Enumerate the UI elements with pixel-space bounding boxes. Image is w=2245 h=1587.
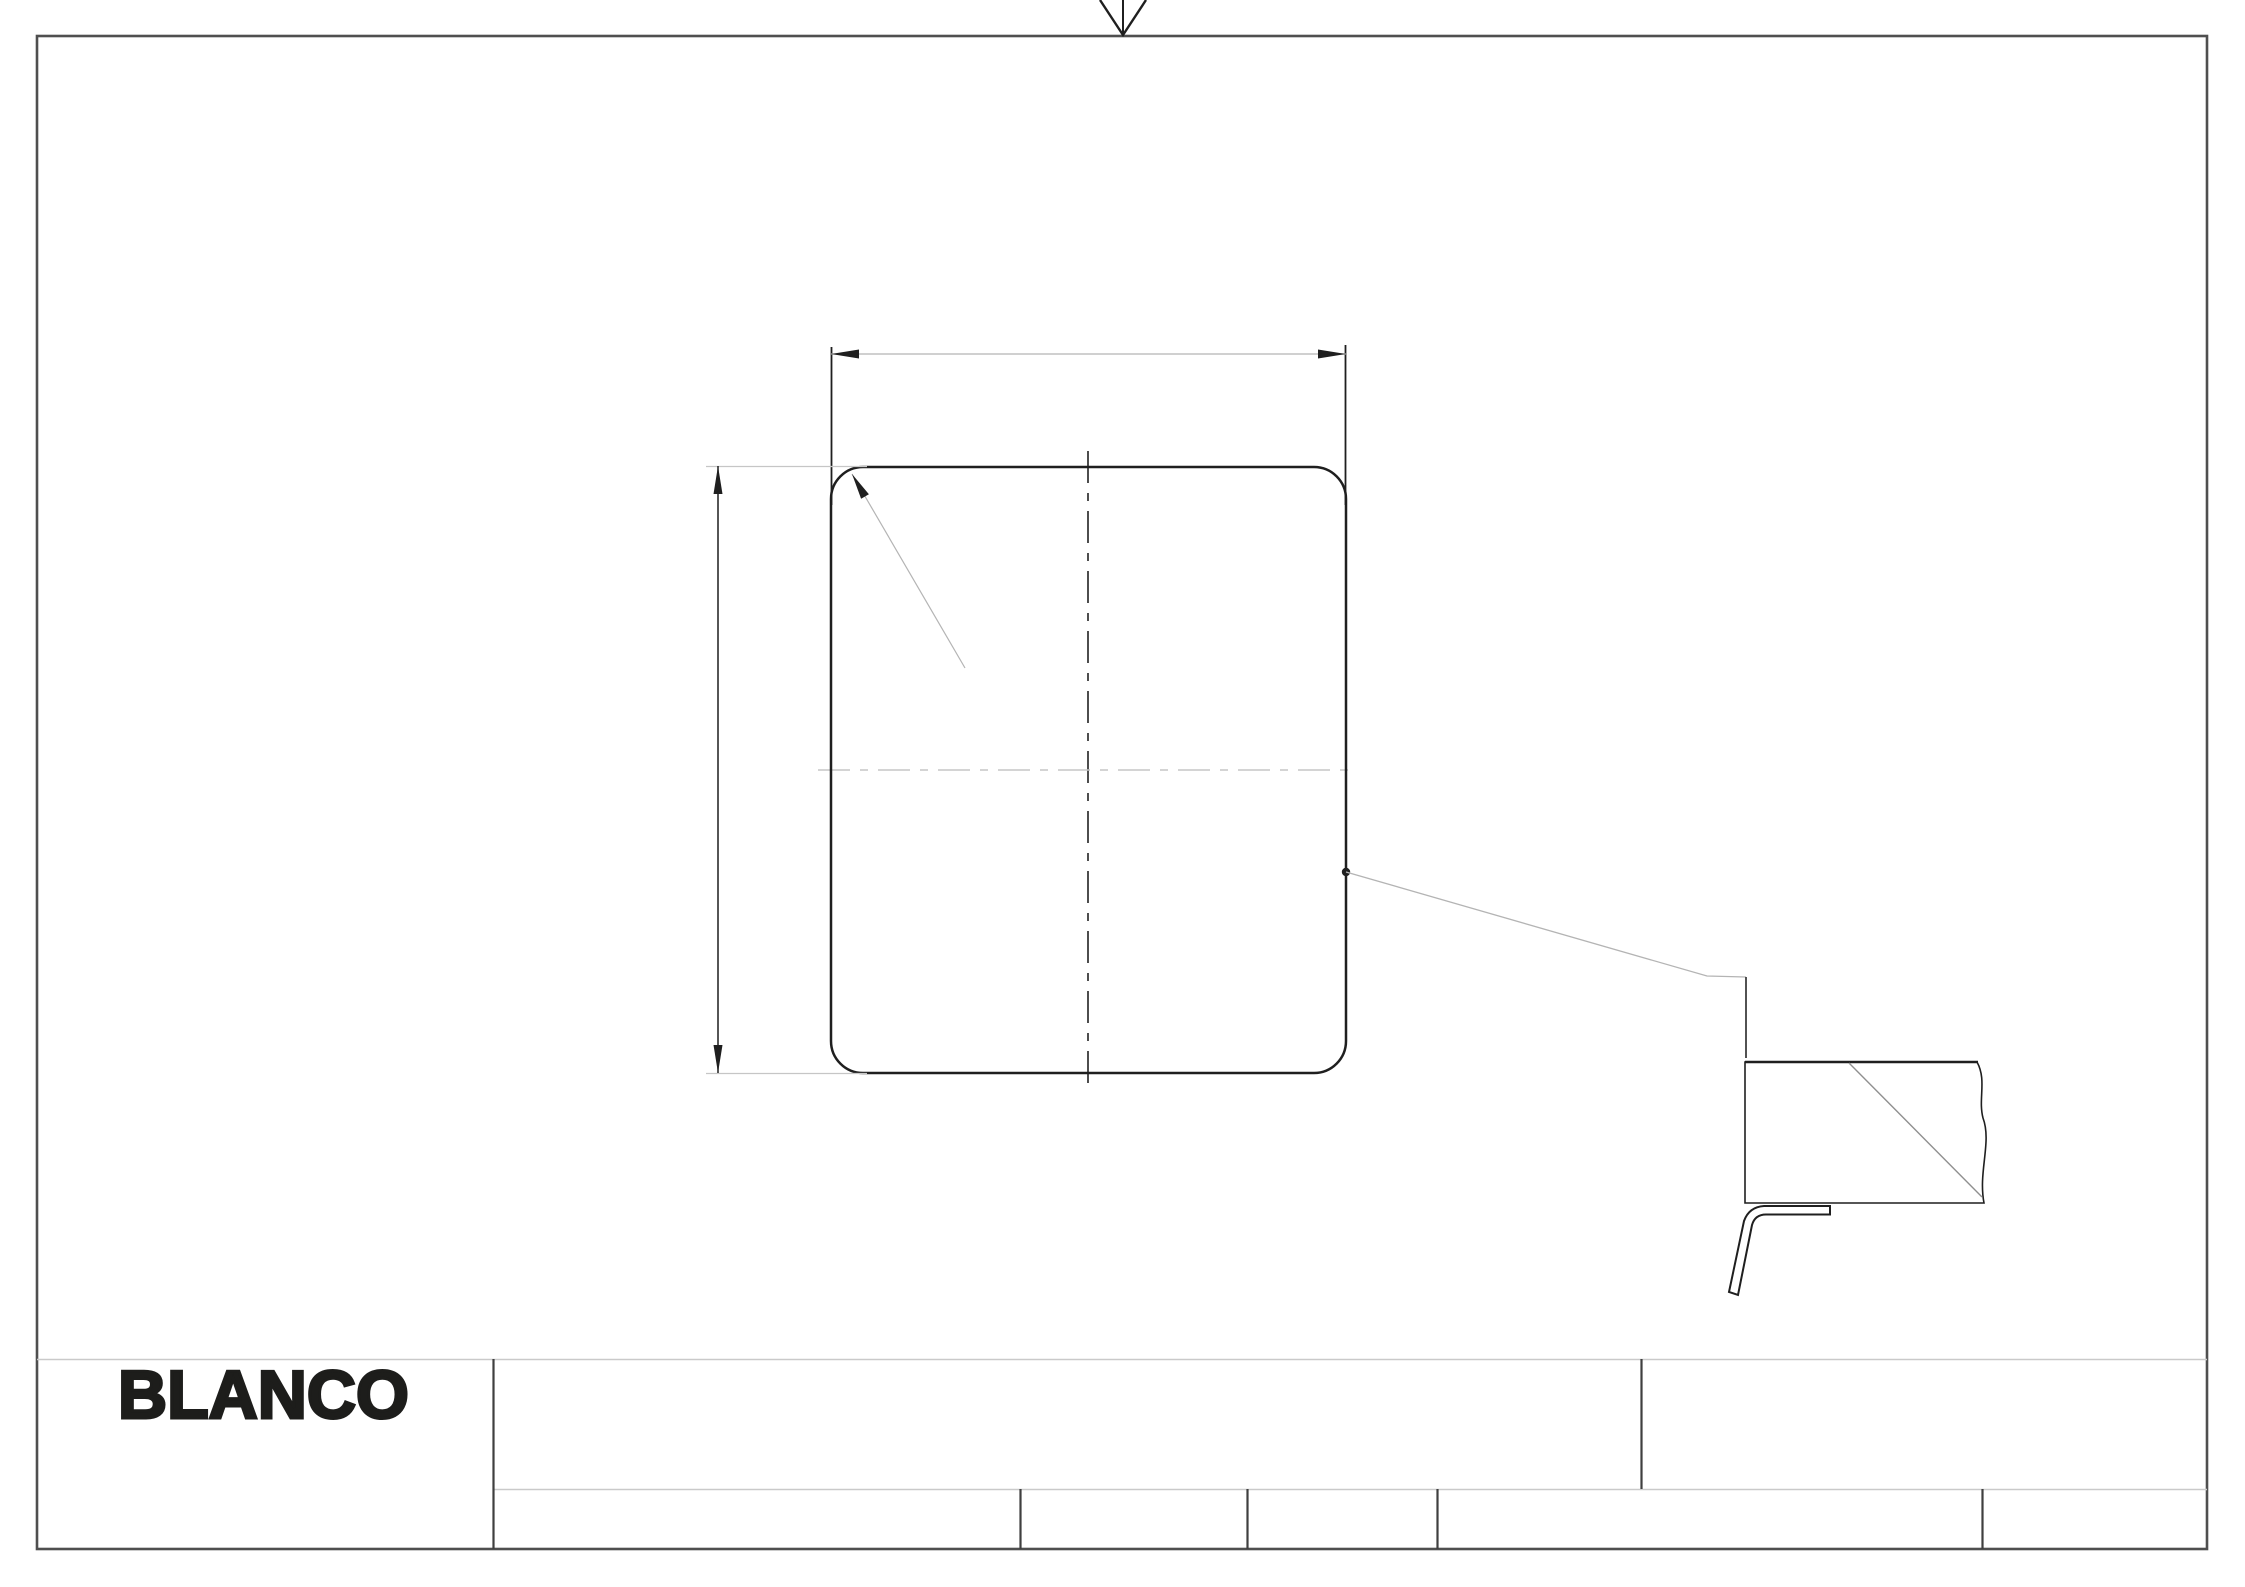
top-center-fold-mark-icon <box>1100 0 1146 35</box>
dimension-arrow-right <box>1318 350 1346 359</box>
corner-radius-leader <box>852 474 965 668</box>
leader-arrowhead <box>852 474 869 499</box>
drawing-sheet-page: { "title_block": { "brand": "BLANCO", "c… <box>0 0 2245 1587</box>
counter-edge-cross-section <box>1729 1062 1986 1295</box>
dimension-arrow-left <box>831 350 859 359</box>
edge-detail-leader <box>1342 868 1746 1058</box>
blanco-logo: BLANCO <box>118 1362 409 1428</box>
dimension-arrow-down <box>714 1045 723 1073</box>
dimension-arrow-up <box>714 466 723 494</box>
hatch-accent-line <box>1849 1063 1982 1197</box>
sink-rim-flange-profile <box>1729 1206 1830 1295</box>
sink-cutout-plan-view <box>706 345 1746 1089</box>
sheet-border-frame <box>37 36 2207 1549</box>
technical-drawing-canvas <box>0 0 2245 1587</box>
drawing-sheet: BLANCO <box>0 0 2245 1587</box>
countertop-section <box>1745 1062 1986 1203</box>
